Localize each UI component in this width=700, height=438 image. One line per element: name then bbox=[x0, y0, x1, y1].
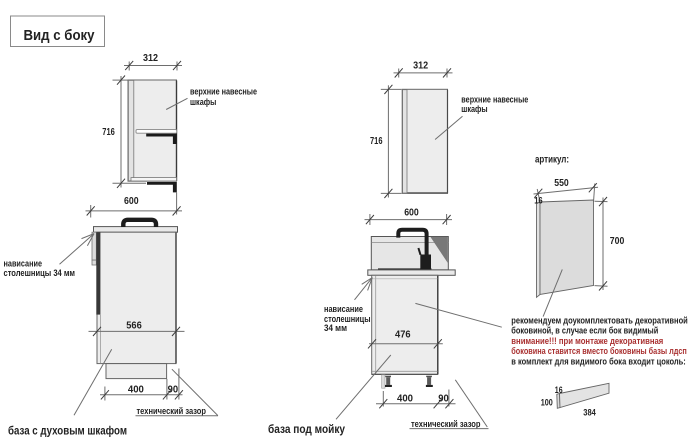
svg-text:16: 16 bbox=[555, 385, 563, 395]
svg-text:600: 600 bbox=[124, 196, 139, 207]
svg-text:100: 100 bbox=[541, 397, 553, 407]
svg-text:артикул:: артикул: bbox=[535, 155, 569, 166]
svg-text:700: 700 bbox=[610, 236, 625, 247]
svg-text:312: 312 bbox=[143, 53, 158, 64]
svg-text:16: 16 bbox=[534, 195, 543, 205]
svg-text:476: 476 bbox=[395, 329, 411, 340]
svg-text:шкафы: шкафы bbox=[461, 104, 487, 115]
svg-text:Вид с боку: Вид с боку bbox=[24, 27, 96, 44]
svg-text:550: 550 bbox=[554, 178, 569, 189]
svg-text:в комплект для видимого бока в: в комплект для видимого бока входит цоко… bbox=[511, 356, 686, 367]
svg-text:шкафы: шкафы bbox=[190, 97, 216, 108]
svg-text:566: 566 bbox=[126, 320, 142, 331]
svg-text:384: 384 bbox=[583, 408, 596, 418]
svg-text:база под мойку: база под мойку bbox=[268, 424, 346, 436]
svg-text:716: 716 bbox=[370, 136, 383, 147]
svg-text:34 мм: 34 мм bbox=[324, 323, 347, 334]
svg-text:90: 90 bbox=[168, 385, 179, 396]
svg-text:база с духовым шкафом: база с духовым шкафом bbox=[8, 425, 127, 437]
svg-text:312: 312 bbox=[413, 60, 428, 71]
svg-text:90: 90 bbox=[438, 394, 449, 405]
svg-text:столешницы 34 мм: столешницы 34 мм bbox=[4, 268, 76, 279]
svg-text:716: 716 bbox=[102, 127, 115, 138]
svg-text:400: 400 bbox=[128, 385, 144, 396]
svg-text:400: 400 bbox=[397, 394, 413, 405]
svg-text:600: 600 bbox=[404, 208, 419, 219]
